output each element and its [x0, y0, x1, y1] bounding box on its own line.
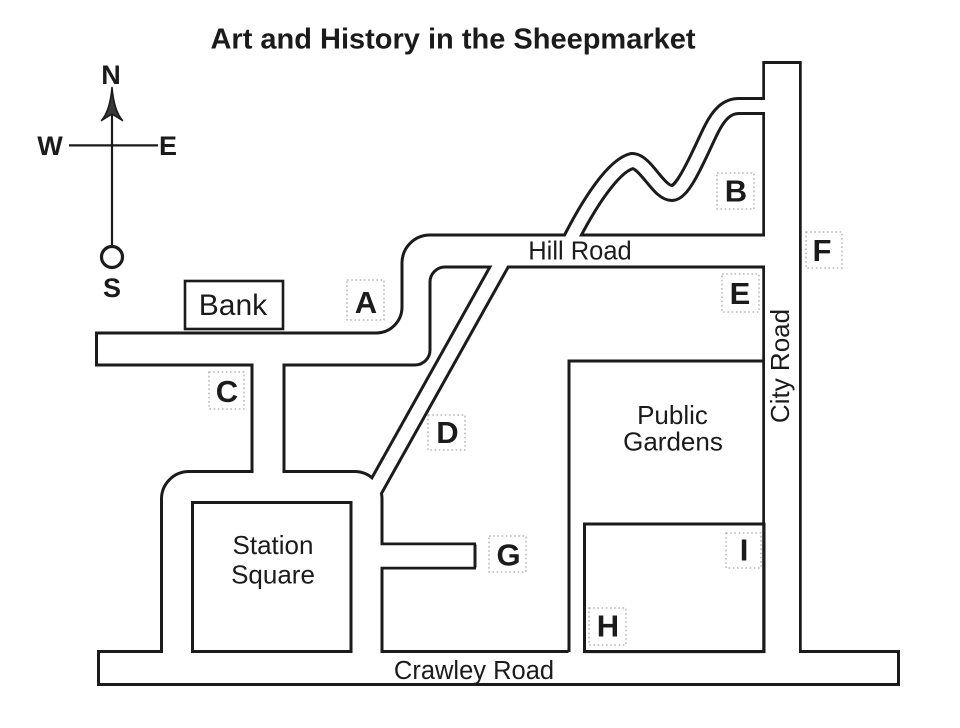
svg-text:F: F: [813, 233, 832, 268]
svg-text:Crawley Road: Crawley Road: [394, 657, 554, 685]
svg-text:E: E: [730, 276, 751, 311]
svg-text:Art and History in the Sheepma: Art and History in the Sheepmarket: [210, 24, 695, 56]
svg-text:D: D: [436, 415, 458, 450]
svg-text:A: A: [355, 285, 377, 320]
svg-text:G: G: [496, 538, 520, 573]
svg-text:City Road: City Road: [765, 309, 795, 423]
svg-text:Square: Square: [231, 560, 315, 590]
svg-text:Station: Station: [233, 530, 314, 560]
svg-text:C: C: [216, 374, 238, 409]
svg-text:N: N: [101, 60, 121, 90]
svg-text:S: S: [103, 273, 121, 303]
svg-text:E: E: [159, 131, 177, 161]
svg-text:W: W: [37, 131, 63, 161]
svg-text:Bank: Bank: [199, 289, 268, 322]
svg-text:Hill Road: Hill Road: [528, 238, 631, 266]
svg-text:Public: Public: [637, 400, 708, 430]
svg-text:I: I: [740, 533, 749, 568]
svg-text:B: B: [725, 174, 747, 209]
svg-text:H: H: [597, 609, 619, 644]
svg-text:Gardens: Gardens: [623, 427, 723, 457]
